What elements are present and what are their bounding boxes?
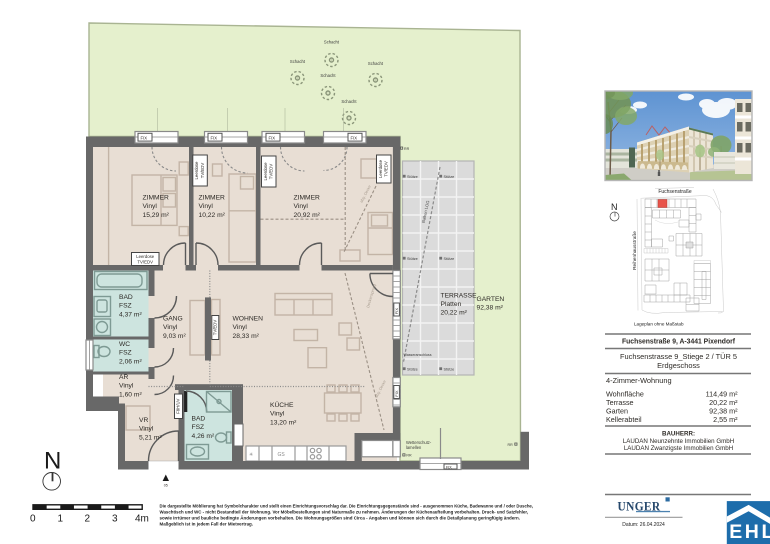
svg-text:Vinyl: Vinyl bbox=[270, 411, 285, 418]
svg-text:FIX: FIX bbox=[446, 465, 452, 469]
svg-text:4m: 4m bbox=[135, 514, 149, 525]
svg-text:20,22 m²: 20,22 m² bbox=[709, 398, 738, 407]
svg-text:13,20 m²: 13,20 m² bbox=[270, 419, 297, 426]
svg-text:92,38 m²: 92,38 m² bbox=[477, 305, 504, 312]
svg-text:TV/EDV: TV/EDV bbox=[269, 164, 274, 180]
svg-text:Vinyl: Vinyl bbox=[139, 426, 154, 433]
svg-text:TV/EDV: TV/EDV bbox=[213, 320, 218, 336]
svg-text:Vinyl: Vinyl bbox=[294, 203, 309, 210]
svg-text:F8H/UV: F8H/UV bbox=[176, 398, 181, 413]
svg-text:FSZ: FSZ bbox=[192, 424, 205, 431]
svg-text:05: 05 bbox=[164, 484, 168, 488]
svg-text:Schacht: Schacht bbox=[341, 99, 357, 104]
svg-text:Wetterschutz-: Wetterschutz- bbox=[406, 440, 432, 445]
svg-text:ZIMMER: ZIMMER bbox=[199, 195, 226, 202]
svg-text:Waschtisch und WC - nicht Best: Waschtisch und WC - nicht Bestandteil de… bbox=[160, 509, 529, 515]
svg-text:Vinyl: Vinyl bbox=[163, 324, 178, 331]
svg-text:3: 3 bbox=[112, 514, 118, 525]
svg-text:Vinyl: Vinyl bbox=[233, 324, 248, 331]
svg-text:WC: WC bbox=[119, 341, 130, 348]
svg-text:FIX: FIX bbox=[141, 136, 148, 141]
svg-text:TERRASSE: TERRASSE bbox=[441, 293, 478, 300]
svg-text:20,22 m²: 20,22 m² bbox=[441, 310, 468, 317]
svg-text:✳: ✳ bbox=[249, 452, 253, 458]
svg-text:Fuchsenstraße: Fuchsenstraße bbox=[658, 189, 692, 195]
svg-text:Fuchsenstrasse 9_Stiege 2 / TÜ: Fuchsenstrasse 9_Stiege 2 / TÜR 5 bbox=[620, 352, 737, 361]
svg-text:Fuchsenstraße 9, A-3441 Pixend: Fuchsenstraße 9, A-3441 Pixendorf bbox=[622, 337, 735, 346]
svg-text:Reihenhausstraße: Reihenhausstraße bbox=[632, 231, 638, 270]
svg-text:15,29 m²: 15,29 m² bbox=[143, 212, 170, 219]
svg-text:2: 2 bbox=[85, 514, 91, 525]
svg-text:4-Zimmer-Wohnung: 4-Zimmer-Wohnung bbox=[606, 376, 672, 385]
svg-text:WOHNEN: WOHNEN bbox=[233, 316, 264, 323]
svg-text:2,06 m²: 2,06 m² bbox=[119, 358, 142, 365]
svg-text:1: 1 bbox=[58, 514, 64, 525]
svg-text:FIX: FIX bbox=[394, 390, 399, 397]
svg-text:1,60 m²: 1,60 m² bbox=[119, 391, 142, 398]
svg-text:Stütze: Stütze bbox=[407, 257, 418, 261]
svg-text:4,37 m²: 4,37 m² bbox=[119, 311, 142, 318]
svg-text:GARTEN: GARTEN bbox=[477, 296, 505, 303]
svg-text:Garten: Garten bbox=[606, 407, 628, 416]
svg-text:Die dargestellte Möblierung ha: Die dargestellte Möblierung hat Symbolch… bbox=[160, 504, 534, 509]
svg-text:Stütze: Stütze bbox=[444, 257, 455, 261]
svg-text:20,92 m²: 20,92 m² bbox=[294, 212, 321, 219]
svg-text:Erdgeschoss: Erdgeschoss bbox=[657, 361, 700, 370]
svg-text:2,55 m²: 2,55 m² bbox=[713, 415, 738, 424]
svg-text:KÜCHE: KÜCHE bbox=[270, 401, 294, 409]
svg-text:RR: RR bbox=[508, 443, 514, 447]
svg-text:FIX: FIX bbox=[211, 136, 218, 141]
svg-text:Wohnfläche: Wohnfläche bbox=[606, 390, 644, 399]
svg-text:Leerdose: Leerdose bbox=[263, 162, 268, 181]
svg-text:FIX: FIX bbox=[269, 136, 276, 141]
svg-text:Stütze: Stütze bbox=[444, 368, 455, 372]
svg-text:Vinyl: Vinyl bbox=[143, 203, 158, 210]
svg-text:TV/EDV: TV/EDV bbox=[200, 163, 205, 179]
svg-text:N: N bbox=[44, 448, 61, 475]
svg-text:AR: AR bbox=[119, 374, 128, 381]
svg-text:Leerdose: Leerdose bbox=[378, 159, 383, 178]
svg-text:4,26 m²: 4,26 m² bbox=[192, 433, 215, 440]
svg-text:Vinyl: Vinyl bbox=[199, 203, 214, 210]
svg-text:Stütze: Stütze bbox=[407, 175, 418, 179]
svg-text:114,49 m²: 114,49 m² bbox=[706, 390, 738, 399]
svg-text:Wasseranschluss: Wasseranschluss bbox=[404, 353, 432, 357]
svg-text:Datum: 26.04.2024: Datum: 26.04.2024 bbox=[622, 522, 665, 528]
svg-text:Leerdose: Leerdose bbox=[194, 161, 199, 180]
svg-text:Schacht: Schacht bbox=[320, 73, 336, 78]
svg-text:FSZ: FSZ bbox=[119, 303, 132, 310]
svg-text:LAUDAN Zwanzigste Immobilien G: LAUDAN Zwanzigste Immobilien GmbH bbox=[624, 445, 733, 452]
svg-text:Lageplan ohne Maßstab: Lageplan ohne Maßstab bbox=[634, 322, 684, 327]
svg-text:Stütze: Stütze bbox=[444, 175, 455, 179]
svg-text:ZIMMER: ZIMMER bbox=[143, 195, 170, 202]
svg-text:RR: RR bbox=[406, 454, 412, 458]
svg-text:5,21 m²: 5,21 m² bbox=[139, 434, 162, 441]
svg-text:FSZ: FSZ bbox=[119, 350, 132, 357]
svg-text:RR: RR bbox=[404, 147, 410, 151]
svg-text:Stütze: Stütze bbox=[407, 368, 418, 372]
svg-text:BAD: BAD bbox=[192, 416, 206, 423]
svg-text:92,38 m²: 92,38 m² bbox=[709, 407, 738, 416]
svg-text:Maßgeblich ist in jedem Fall d: Maßgeblich ist in jedem Fall der Mietver… bbox=[160, 522, 254, 527]
svg-text:TV/EDV: TV/EDV bbox=[384, 161, 389, 177]
svg-text:LAUDAN Neunzehnte Immobilien G: LAUDAN Neunzehnte Immobilien GmbH bbox=[623, 438, 734, 445]
svg-text:ZIMMER: ZIMMER bbox=[294, 195, 321, 202]
svg-text:GS: GS bbox=[278, 452, 286, 458]
svg-text:BAUHERR:: BAUHERR: bbox=[662, 431, 695, 438]
svg-text:FIX: FIX bbox=[394, 308, 399, 315]
svg-text:GANG: GANG bbox=[163, 316, 183, 323]
svg-text:0: 0 bbox=[30, 514, 36, 525]
svg-text:Vinyl: Vinyl bbox=[119, 383, 134, 390]
svg-text:9,03 m²: 9,03 m² bbox=[163, 333, 186, 340]
svg-text:28,33 m²: 28,33 m² bbox=[233, 333, 260, 340]
svg-text:Platten: Platten bbox=[441, 301, 462, 308]
svg-text:EHL: EHL bbox=[729, 521, 770, 543]
svg-text:FIX: FIX bbox=[351, 136, 358, 141]
svg-text:Schacht: Schacht bbox=[290, 59, 306, 64]
svg-text:VR: VR bbox=[139, 417, 148, 424]
svg-text:TV/EDV: TV/EDV bbox=[137, 260, 153, 265]
svg-text:BAD: BAD bbox=[119, 294, 133, 301]
svg-text:Terrasse: Terrasse bbox=[606, 398, 634, 407]
svg-text:Schacht: Schacht bbox=[324, 40, 340, 45]
svg-text:Leerdose: Leerdose bbox=[136, 254, 155, 259]
svg-text:sowie Irrtümer und bauliche be: sowie Irrtümer und bauliche bedingte Änd… bbox=[160, 515, 521, 521]
svg-text:lamellen: lamellen bbox=[406, 445, 422, 450]
svg-text:Kellerabteil: Kellerabteil bbox=[606, 415, 642, 424]
svg-text:10,22 m²: 10,22 m² bbox=[199, 212, 226, 219]
svg-text:N: N bbox=[611, 202, 618, 212]
svg-text:Schacht: Schacht bbox=[368, 61, 384, 66]
